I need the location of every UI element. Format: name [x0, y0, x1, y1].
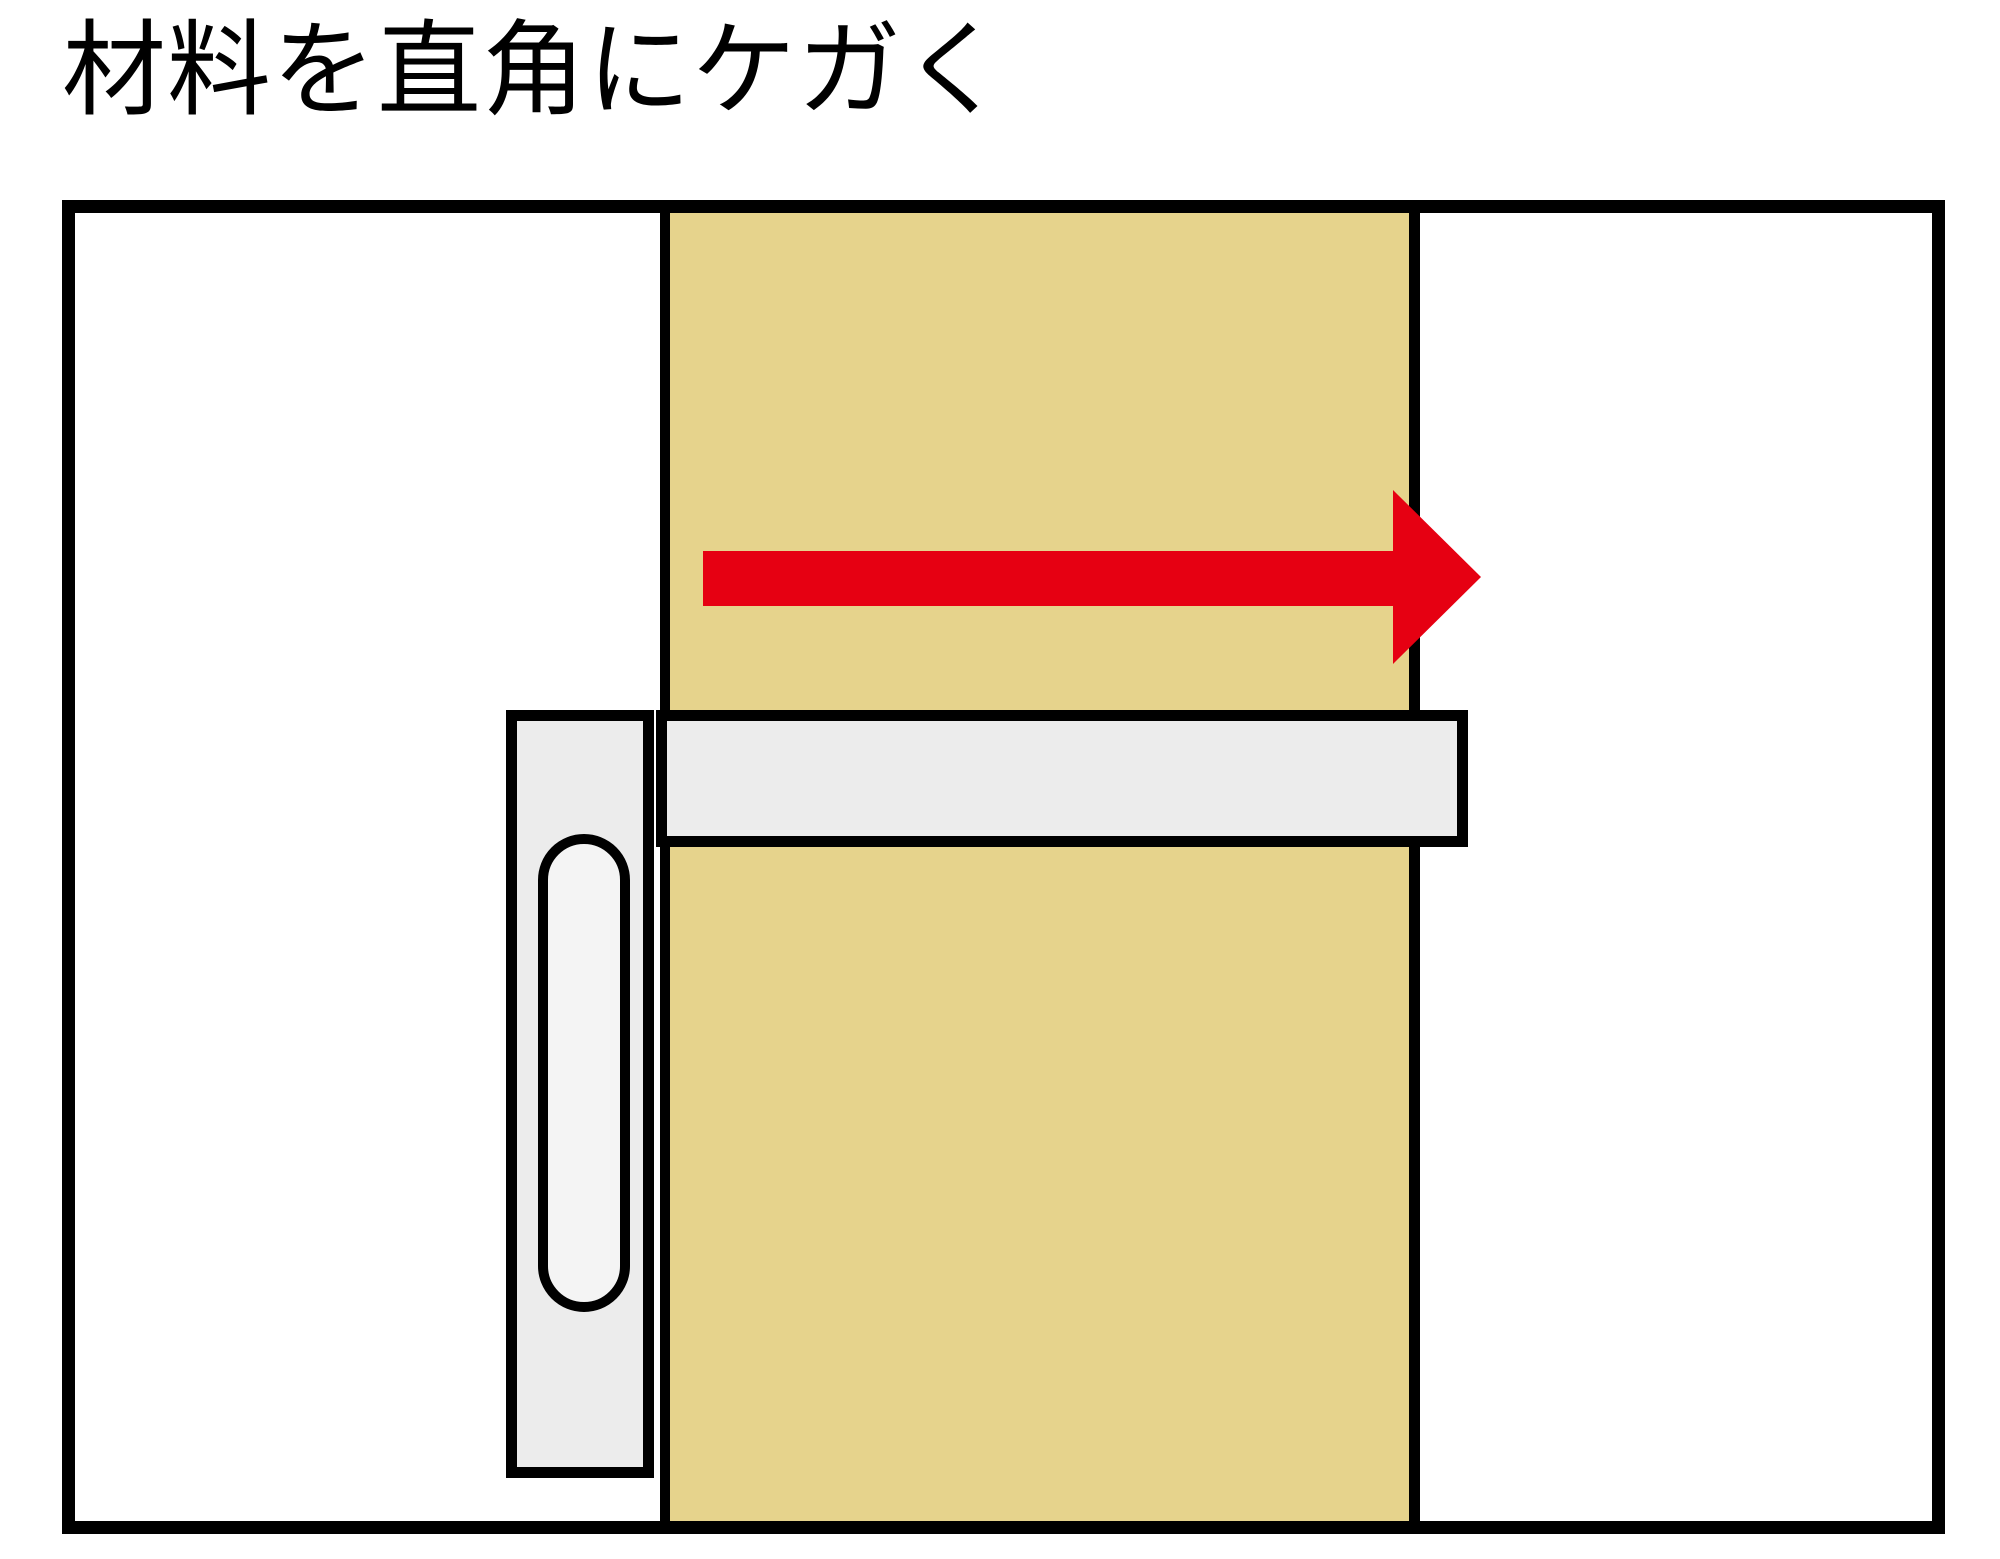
- stock-slot: [538, 834, 630, 1312]
- square-blade: [656, 710, 1468, 847]
- arrow-shaft: [703, 551, 1393, 606]
- arrow-head: [1393, 490, 1481, 664]
- diagram-canvas: 材料を直角にケガく: [0, 0, 2000, 1559]
- wood-board: [660, 208, 1420, 1530]
- page-title: 材料を直角にケガく: [62, 6, 1007, 136]
